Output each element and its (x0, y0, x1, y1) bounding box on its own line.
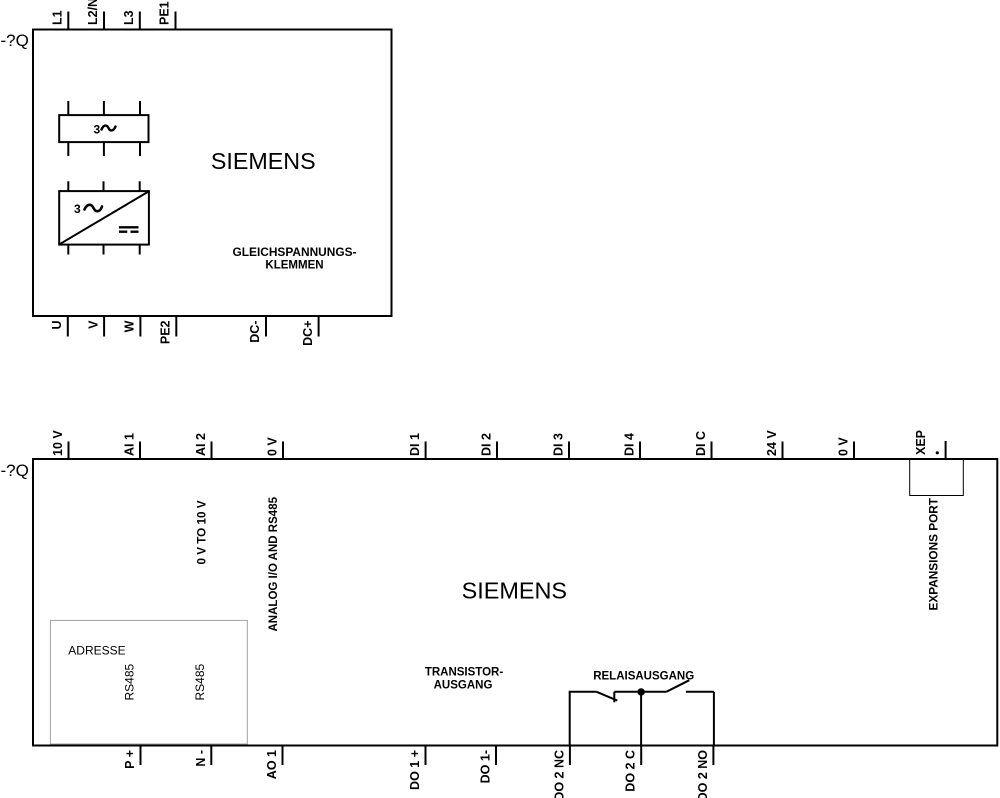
svg-text:V: V (86, 320, 100, 329)
svg-text:3: 3 (74, 202, 81, 216)
svg-text:GLEICHSPANNUNGS-: GLEICHSPANNUNGS- (233, 247, 357, 259)
svg-text:DO 1-: DO 1- (479, 750, 493, 783)
svg-text:KLEMMEN: KLEMMEN (265, 260, 323, 272)
svg-text:TRANSISTOR-: TRANSISTOR- (425, 667, 504, 679)
svg-text:ADRESSE: ADRESSE (68, 643, 125, 657)
svg-text:PE1: PE1 (158, 1, 172, 25)
svg-text:DI 1: DI 1 (408, 433, 422, 456)
svg-text:0 V: 0 V (837, 437, 851, 456)
svg-text:3: 3 (94, 123, 101, 137)
svg-text:DO 2 NC: DO 2 NC (552, 750, 566, 798)
svg-text:DI 4: DI 4 (623, 433, 637, 456)
svg-text:L3: L3 (122, 10, 136, 25)
svg-text:DO 1 +: DO 1 + (408, 750, 422, 790)
svg-text:AI 2: AI 2 (194, 433, 208, 456)
svg-text:0 V TO 10 V: 0 V TO 10 V (195, 501, 209, 565)
svg-text:-?Q: -?Q (1, 461, 29, 480)
svg-text:DI 2: DI 2 (480, 433, 494, 456)
svg-text:SIEMENS: SIEMENS (462, 577, 567, 603)
svg-text:L1: L1 (51, 10, 65, 25)
svg-text:SIEMENS: SIEMENS (211, 148, 316, 174)
svg-text:AO 1: AO 1 (265, 750, 279, 779)
svg-text:DI C: DI C (694, 431, 708, 456)
svg-text:W: W (123, 320, 137, 332)
svg-text:10 V: 10 V (51, 430, 65, 456)
svg-text:DO 2 C: DO 2 C (624, 750, 638, 792)
svg-text:PE2: PE2 (159, 320, 173, 344)
svg-text:DI 3: DI 3 (552, 433, 566, 456)
svg-text:AI 1: AI 1 (123, 433, 137, 456)
svg-text:N -: N - (194, 750, 208, 767)
svg-text:24 V: 24 V (765, 430, 779, 456)
svg-text:RS485: RS485 (122, 663, 136, 700)
svg-text:DO 2 NO: DO 2 NO (696, 750, 710, 798)
svg-text:RS485: RS485 (193, 663, 207, 700)
svg-text:XEP: XEP (914, 430, 928, 455)
svg-text:DC+: DC+ (301, 321, 315, 346)
svg-text:AUSGANG: AUSGANG (434, 680, 493, 692)
svg-text:-?Q: -?Q (1, 31, 29, 50)
svg-text:U: U (50, 321, 64, 330)
svg-text:P +: P + (123, 750, 137, 769)
svg-text:L2/N: L2/N (86, 0, 100, 25)
svg-text:0 V: 0 V (266, 437, 280, 456)
svg-text:RELAISAUSGANG: RELAISAUSGANG (593, 671, 694, 683)
svg-text:DC-: DC- (248, 321, 262, 343)
svg-text:EXPANSIONS PORT: EXPANSIONS PORT (927, 497, 941, 610)
svg-text:ANALOG I/O AND RS485: ANALOG I/O AND RS485 (266, 497, 280, 632)
